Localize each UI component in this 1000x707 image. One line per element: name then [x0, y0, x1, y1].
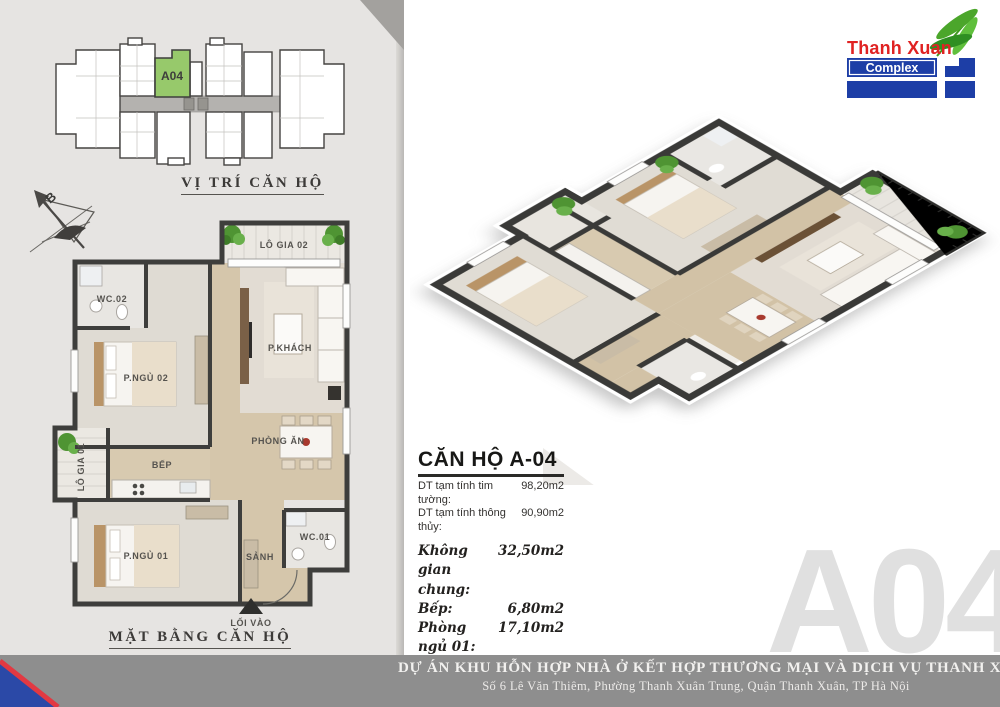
area-value: 32,50m2	[498, 542, 564, 600]
room-label-bep: BẾP	[152, 460, 172, 470]
room-label-logia01: LÔ GIA 01	[75, 443, 86, 492]
area-header-value: 90,90m2	[521, 507, 564, 534]
corner-triangle-decoration	[0, 655, 70, 707]
left-wing	[56, 50, 120, 148]
logo-bottom-bar	[847, 81, 937, 98]
floorplan-caption-wrap: MẶT BẰNG CĂN HỘ	[90, 628, 310, 649]
footer-band: DỰ ÁN KHU HỖN HỢP NHÀ Ở KẾT HỢP THƯƠNG M…	[0, 655, 1000, 707]
balcony-tooth	[168, 158, 184, 165]
apartment-3d-render	[410, 50, 1000, 485]
room-label-sanh: SẢNH	[246, 551, 274, 562]
area-row: Bếp: 6,80m2	[418, 600, 564, 619]
unit-a04-label: A04	[161, 69, 183, 83]
area-value: 6,80m2	[507, 600, 564, 619]
area-header-value: 98,20m2	[521, 480, 564, 507]
logo-bottom-block	[945, 81, 975, 98]
logo-sub-text: Complex	[866, 61, 919, 75]
room-label-logia02: LÔ GIA 02	[260, 239, 309, 250]
balcony-tooth	[224, 158, 240, 165]
unit-block	[120, 112, 155, 158]
room-label-phongan: PHÒNG ĂN	[251, 435, 304, 446]
area-label: Không gian chung:	[418, 542, 498, 600]
kitchen-counter	[112, 480, 210, 498]
corridor-floor	[210, 263, 240, 500]
logo-brand-text: Thanh Xuan	[847, 38, 952, 58]
room-label-ngu02: P.NGỦ 02	[124, 372, 169, 383]
area-header-label: DT tạm tính tim tường:	[418, 480, 521, 507]
title-underline	[418, 474, 564, 477]
area-row: Không gian chung: 32,50m2	[418, 542, 564, 600]
thanh-xuan-complex-logo: Thanh Xuan Complex	[845, 4, 985, 104]
footer-text: DỰ ÁN KHU HỖN HỢP NHÀ Ở KẾT HỢP THƯƠNG M…	[398, 660, 994, 694]
room-label-wc02: WC.02	[97, 294, 128, 304]
balcony-tooth	[210, 38, 224, 45]
location-caption-wrap: VỊ TRÍ CĂN HỘ	[150, 174, 355, 195]
area-value: 17,10m2	[498, 619, 564, 658]
iso-apartment	[420, 92, 984, 416]
room-label-ngu01: P.NGỦ 01	[124, 550, 169, 561]
unit-watermark: A04	[766, 528, 1000, 676]
unit-block	[120, 44, 155, 96]
location-caption: VỊ TRÍ CĂN HỘ	[181, 175, 324, 195]
area-label: Phòng ngủ 01:	[418, 619, 498, 658]
floorplan-2d: LÔ GIA 02 WC.02 P.KHÁCH P.NGỦ 02 PHÒNG Ă…	[34, 210, 374, 632]
project-address: Số 6 Lê Văn Thiêm, Phường Thanh Xuân Tru…	[398, 679, 994, 694]
unit-block	[157, 112, 190, 164]
area-header-label: DT tạm tính thông thủy:	[418, 507, 521, 534]
floorplan-caption: MẶT BẰNG CĂN HỘ	[109, 629, 292, 649]
building-location-plan: A04	[48, 6, 352, 174]
unit-block	[244, 112, 272, 158]
right-wing	[280, 50, 344, 148]
area-row: Phòng ngủ 01: 17,10m2	[418, 619, 564, 658]
elevator-core	[184, 98, 194, 110]
unit-block	[190, 62, 202, 96]
unit-title: CĂN HỘ A-04	[418, 448, 578, 472]
page-edge-shading	[396, 0, 404, 655]
logo-step-block	[945, 58, 975, 77]
project-title: DỰ ÁN KHU HỖN HỢP NHÀ Ở KẾT HỢP THƯƠNG M…	[398, 660, 994, 677]
brochure-page: A04 VỊ TRÍ CĂN HỘ B	[0, 0, 1000, 707]
area-header-row: DT tạm tính thông thủy: 90,90m2	[418, 507, 564, 534]
area-label: Bếp:	[418, 600, 452, 619]
balcony-tooth	[128, 38, 142, 45]
area-header-row: DT tạm tính tim tường: 98,20m2	[418, 480, 564, 507]
unit-block	[244, 52, 272, 96]
room-label-wc01: WC.01	[300, 532, 331, 542]
hall-cabinet	[244, 540, 258, 588]
room-label-khach: P.KHÁCH	[268, 343, 312, 353]
entry-label: LỐI VÀO	[230, 617, 271, 628]
elevator-core	[198, 98, 208, 110]
